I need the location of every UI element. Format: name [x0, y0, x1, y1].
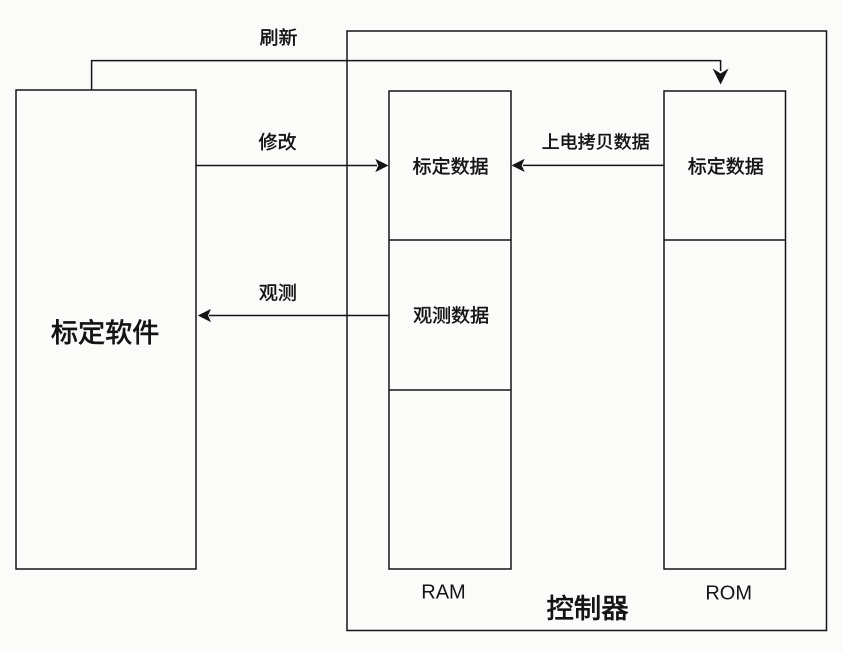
svg-text:ROM: ROM	[705, 583, 752, 605]
svg-text:RAM: RAM	[421, 582, 465, 604]
